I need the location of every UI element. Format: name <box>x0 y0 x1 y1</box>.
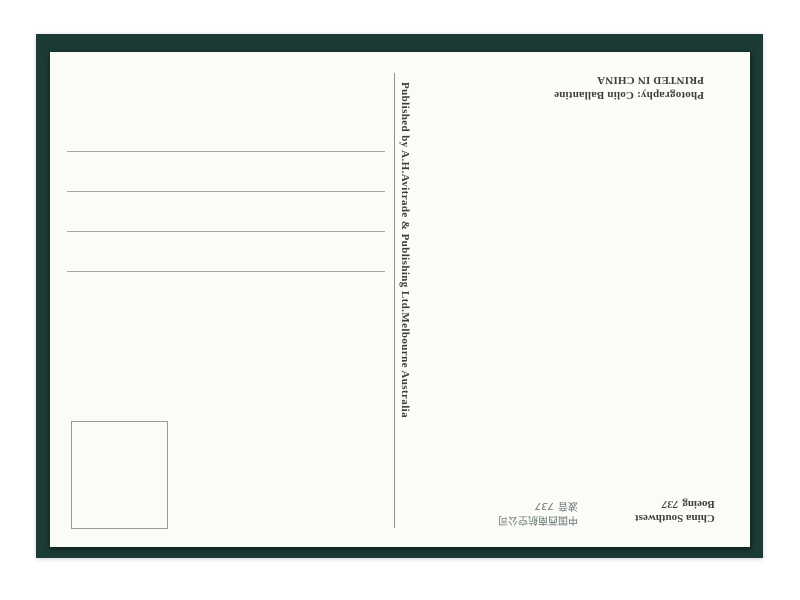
airline-name-en: China Southwest <box>635 511 715 525</box>
photo-credit-block: Photography: Colin Ballantine PRINTED IN… <box>554 72 704 102</box>
address-line <box>67 271 385 272</box>
aircraft-caption-en: China Southwest Boeing737 <box>635 497 715 525</box>
aircraft-model-en: Boeing737 <box>635 497 715 511</box>
stamp-box <box>71 421 168 529</box>
postcard-scan: Photography: Colin Ballantine PRINTED IN… <box>0 0 800 600</box>
airline-name-cn: 中国西南航空公司 <box>498 512 578 526</box>
postcard-back: Photography: Colin Ballantine PRINTED IN… <box>50 52 750 547</box>
publisher-credit: Published by A.H.Avitrade & Publishing L… <box>399 82 411 418</box>
aircraft-model-cn: 波音737 <box>498 498 578 512</box>
photo-credit-line: Photography: Colin Ballantine <box>554 87 704 102</box>
address-line <box>67 151 385 152</box>
printed-in-china-line: PRINTED IN CHINA <box>554 72 704 87</box>
address-line <box>67 231 385 232</box>
divider-line <box>394 73 395 528</box>
address-line <box>67 191 385 192</box>
aircraft-caption-cn: 中国西南航空公司 波音737 <box>498 498 578 526</box>
